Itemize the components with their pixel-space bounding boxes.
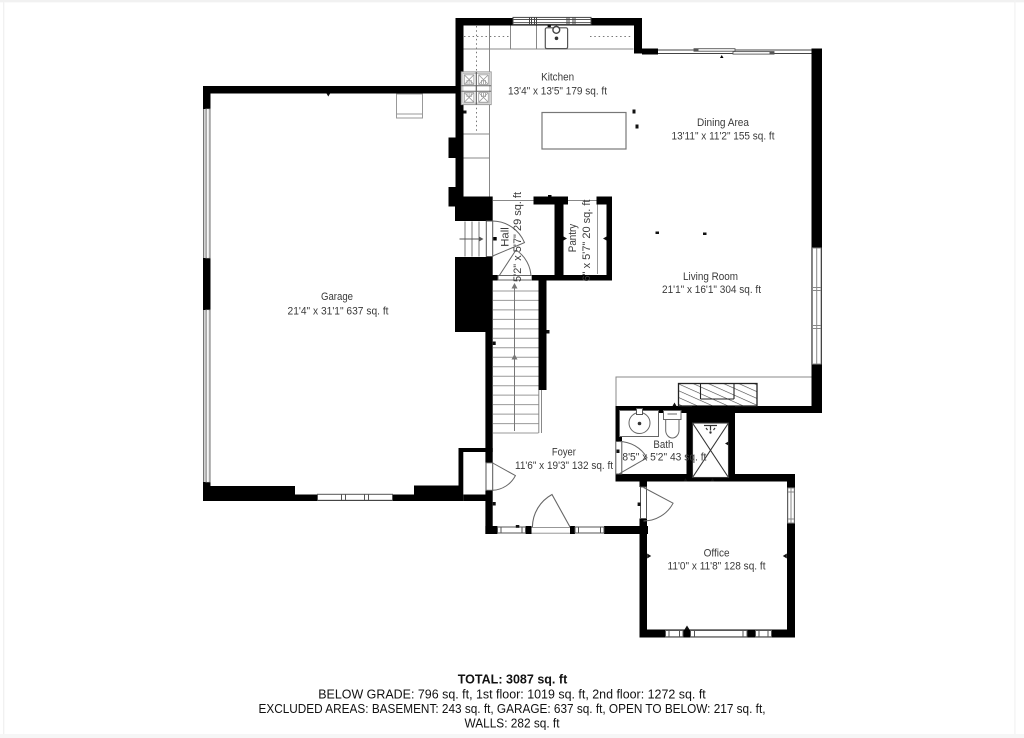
- svg-text:Foyer: Foyer: [552, 446, 576, 458]
- svg-text:Bath: Bath: [653, 439, 673, 451]
- svg-text:WALLS: 282 sq. ft: WALLS: 282 sq. ft: [465, 716, 560, 730]
- svg-text:21'1" x 16'1" 304 sq. ft: 21'1" x 16'1" 304 sq. ft: [662, 284, 761, 296]
- svg-text:8'5" x 5'2" 43 sq. ft: 8'5" x 5'2" 43 sq. ft: [622, 452, 706, 464]
- svg-text:Hall: Hall: [499, 227, 511, 247]
- svg-text:6" x 5'7" 20 sq. ft: 6" x 5'7" 20 sq. ft: [581, 199, 593, 281]
- svg-text:Living Room: Living Room: [683, 271, 738, 283]
- svg-text:5'2" x 5'7" 29 sq. ft: 5'2" x 5'7" 29 sq. ft: [512, 192, 524, 282]
- svg-text:13'4" x 13'5" 179 sq. ft: 13'4" x 13'5" 179 sq. ft: [508, 85, 607, 97]
- svg-text:13'11" x 11'2" 155 sq. ft: 13'11" x 11'2" 155 sq. ft: [672, 131, 775, 143]
- svg-text:EXCLUDED AREAS: BASEMENT: 243: EXCLUDED AREAS: BASEMENT: 243 sq. ft, GA…: [259, 702, 766, 716]
- svg-text:Dining Area: Dining Area: [697, 117, 749, 129]
- svg-text:Office: Office: [704, 547, 730, 559]
- svg-text:11'0" x 11'8" 128 sq. ft: 11'0" x 11'8" 128 sq. ft: [668, 560, 766, 572]
- svg-text:Kitchen: Kitchen: [541, 71, 574, 83]
- svg-text:21'4" x 31'1" 637 sq. ft: 21'4" x 31'1" 637 sq. ft: [288, 305, 389, 317]
- svg-text:TOTAL: 3087 sq. ft: TOTAL: 3087 sq. ft: [458, 673, 568, 687]
- svg-text:11'6" x 19'3" 132 sq. ft: 11'6" x 19'3" 132 sq. ft: [515, 460, 613, 472]
- svg-text:Garage: Garage: [321, 291, 353, 303]
- svg-text:Pantry: Pantry: [567, 223, 579, 252]
- svg-text:BELOW GRADE: 796 sq. ft, 1st f: BELOW GRADE: 796 sq. ft, 1st floor: 1019…: [318, 687, 706, 701]
